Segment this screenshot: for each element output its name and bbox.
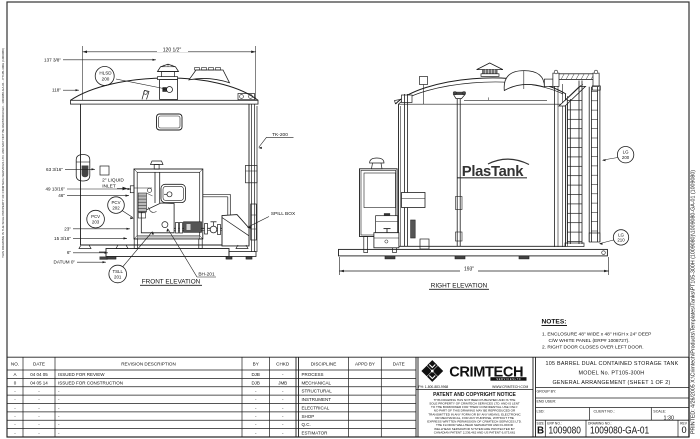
svg-text:WWW.CRIMTECH.COM: WWW.CRIMTECH.COM (492, 385, 528, 389)
svg-text:RIGHT ELEVATION: RIGHT ELEVATION (431, 282, 488, 289)
svg-text:NOTES:: NOTES: (542, 319, 567, 326)
svg-text:118": 118" (52, 88, 61, 93)
svg-text:NO.: NO. (11, 361, 19, 366)
svg-text:S E R V I C E S L T D: S E R V I C E S L T D (496, 378, 520, 381)
svg-text:APPD BY: APPD BY (355, 361, 375, 366)
svg-text:DISCIPLINE: DISCIPLINE (311, 361, 337, 366)
svg-text:ELECTRICAL: ELECTRICAL (302, 405, 330, 410)
svg-text:THIS DRAWING IS THE SOLE PROPE: THIS DRAWING IS THE SOLE PROPERTY OF CRI… (1, 48, 5, 258)
svg-text:LSD:: LSD: (537, 410, 545, 414)
svg-text:PCV: PCV (91, 214, 100, 219)
svg-text:MECHANICAL: MECHANICAL (302, 380, 332, 385)
svg-text:FRONT ELEVATION: FRONT ELEVATION (142, 278, 201, 285)
svg-text:2. RIGHT DOOR CLOSES OVER LEF: 2. RIGHT DOOR CLOSES OVER LEFT DOOR. (542, 344, 644, 350)
svg-text:HLSD: HLSD (99, 71, 112, 76)
svg-text:49 13/16": 49 13/16" (45, 187, 65, 192)
svg-text:CLIENT NO.:: CLIENT NO.: (594, 410, 615, 414)
svg-text:0: 0 (681, 425, 686, 435)
svg-text:DATE: DATE (33, 361, 45, 366)
svg-text:CANADIAN PATENT 2,236,462 AND: CANADIAN PATENT 2,236,462 AND US PATENT … (434, 430, 516, 434)
svg-text:GENERAL ARRANGEMENT (SHEET 1 O: GENERAL ARRANGEMENT (SHEET 1 OF 2) (552, 380, 670, 386)
svg-text:ISSUED FOR REVIEW: ISSUED FOR REVIEW (58, 372, 105, 377)
svg-text:SPILL BOX: SPILL BOX (271, 211, 296, 217)
svg-text:210: 210 (617, 238, 625, 243)
svg-text:46": 46" (58, 193, 65, 198)
svg-text:04 05 14: 04 05 14 (30, 380, 48, 385)
svg-text:A: A (13, 372, 16, 377)
svg-text:GROUP BY:: GROUP BY: (537, 390, 557, 394)
svg-text:STRUCTURAL: STRUCTURAL (302, 389, 333, 394)
svg-text:ISSUED FOR CONSTRUCTION: ISSUED FOR CONSTRUCTION (58, 380, 123, 385)
svg-text:INSTRUMENT: INSTRUMENT (302, 397, 332, 402)
svg-text:MODEL No. PT105-300H: MODEL No. PT105-300H (579, 370, 645, 376)
svg-text:CHKD: CHKD (276, 361, 290, 366)
svg-text:193": 193" (464, 266, 474, 272)
svg-text:1:30: 1:30 (664, 416, 675, 422)
svg-text:Q.C.: Q.C. (302, 422, 311, 427)
svg-text:DATE: DATE (393, 361, 405, 366)
svg-text:200: 200 (102, 77, 110, 82)
svg-text:202: 202 (112, 206, 120, 211)
svg-text:PROCESS: PROCESS (302, 372, 324, 377)
svg-text:LG: LG (618, 232, 624, 237)
svg-text:TSLL: TSLL (112, 269, 123, 274)
svg-text:B: B (537, 425, 544, 436)
svg-text:137 3/8": 137 3/8" (44, 57, 61, 62)
svg-text:PH: 1-800-883-9968: PH: 1-800-883-9968 (418, 385, 448, 389)
svg-text:SHOP: SHOP (302, 414, 315, 419)
svg-text:1009080: 1009080 (549, 425, 581, 436)
svg-text:C/W WHITE PANEL (ERP# 1008727): C/W WHITE PANEL (ERP# 1008727). (549, 338, 630, 344)
svg-text:203: 203 (92, 220, 100, 225)
svg-text:201: 201 (114, 275, 122, 280)
svg-text:TK-200: TK-200 (272, 132, 288, 138)
svg-text:DJB: DJB (251, 372, 260, 377)
svg-text:6": 6" (67, 250, 72, 255)
svg-text:INLET: INLET (102, 184, 116, 190)
svg-text:15 3/16": 15 3/16" (54, 236, 71, 241)
svg-text:PRINTED: 4/26/2005 X:\Crimtec: PRINTED: 4/26/2005 X:\Crimtech\Products\… (691, 170, 697, 434)
svg-text:END USER:: END USER: (537, 400, 557, 404)
svg-text:SCALE:: SCALE: (653, 410, 666, 414)
svg-text:105 BARREL DUAL CONTAINED STOR: 105 BARREL DUAL CONTAINED STORAGE TANK (545, 361, 678, 367)
svg-text:2" LIQUID: 2" LIQUID (102, 177, 124, 183)
svg-text:LG: LG (623, 150, 629, 155)
svg-text:PCV: PCV (111, 200, 120, 205)
svg-text:1. ENCLOSURE 48" WIDE x 48" H: 1. ENCLOSURE 48" WIDE x 48" HIGH x 24" D… (542, 331, 651, 337)
svg-text:200: 200 (622, 155, 630, 160)
svg-text:120 1/2": 120 1/2" (163, 47, 182, 53)
svg-text:04 04 05: 04 04 05 (30, 372, 48, 377)
svg-text:63 3/16": 63 3/16" (46, 167, 63, 172)
svg-text:DJB: DJB (251, 380, 260, 385)
svg-text:REVISION DESCRIPTION: REVISION DESCRIPTION (121, 361, 176, 366)
svg-text:JMB: JMB (278, 380, 287, 385)
svg-text:BY: BY (253, 361, 259, 366)
svg-text:1009080-GA-01: 1009080-GA-01 (590, 425, 649, 436)
svg-text:23": 23" (64, 226, 71, 231)
svg-text:ESTIMATOR: ESTIMATOR (302, 431, 329, 436)
svg-text:DATUM 0": DATUM 0" (54, 260, 76, 265)
